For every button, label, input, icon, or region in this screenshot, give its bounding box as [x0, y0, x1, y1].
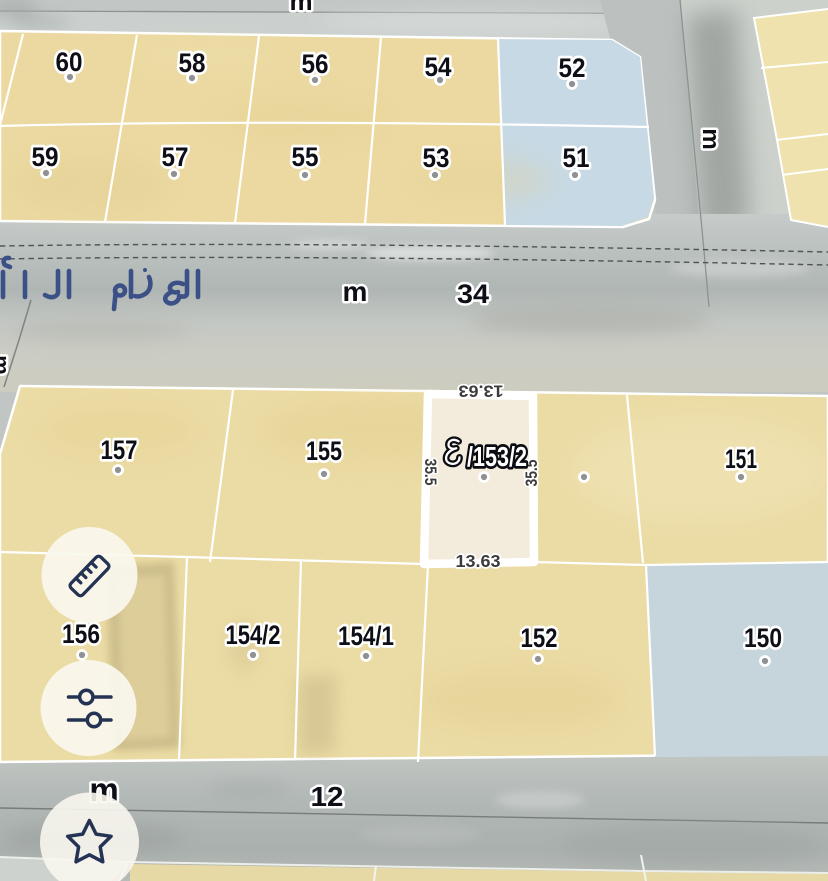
svg-text:154/2: 154/2 — [226, 620, 281, 650]
svg-text:156: 156 — [62, 619, 100, 649]
svg-text:152: 152 — [521, 623, 558, 653]
svg-text:m: m — [343, 276, 368, 307]
svg-text:51: 51 — [563, 143, 590, 173]
svg-text:59: 59 — [32, 142, 59, 172]
svg-text:150: 150 — [744, 623, 782, 653]
svg-text:13.63: 13.63 — [456, 551, 501, 571]
svg-text:154/1: 154/1 — [338, 621, 394, 651]
svg-text:m: m — [697, 128, 724, 149]
svg-text:54: 54 — [425, 52, 452, 82]
svg-text:34: 34 — [457, 279, 489, 309]
svg-text:m: m — [289, 0, 312, 16]
svg-text:157: 157 — [101, 435, 138, 465]
svg-text:52: 52 — [559, 53, 586, 83]
svg-text:35.5: 35.5 — [421, 459, 440, 486]
svg-text:12: 12 — [311, 781, 344, 812]
svg-text:/153/2: /153/2 — [467, 441, 527, 472]
svg-text:60: 60 — [56, 47, 83, 77]
svg-text:53: 53 — [423, 143, 450, 173]
svg-text:m: m — [0, 355, 14, 375]
svg-text:155: 155 — [306, 436, 342, 466]
svg-text:57: 57 — [162, 142, 189, 172]
svg-text:58: 58 — [179, 48, 206, 78]
svg-text:55: 55 — [292, 142, 319, 172]
svg-text:56: 56 — [302, 49, 329, 79]
svg-text:13.63: 13.63 — [459, 382, 504, 401]
svg-text:151: 151 — [725, 444, 757, 474]
